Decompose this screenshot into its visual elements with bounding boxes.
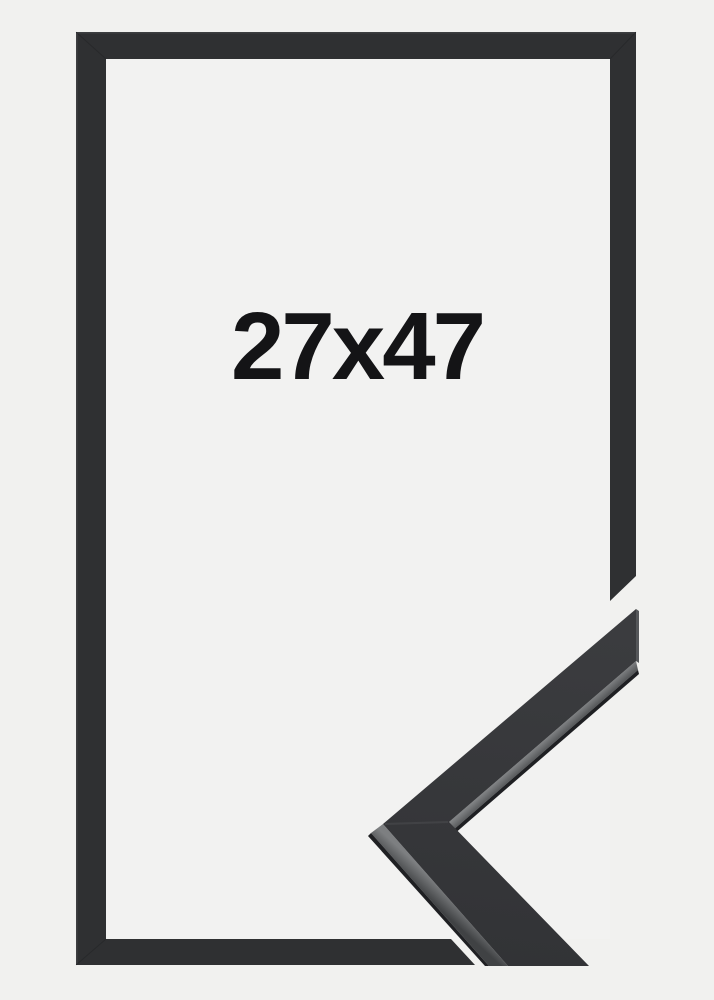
- size-label: 27x47: [0, 280, 714, 414]
- corner-sample-end-cut-edge: [636, 609, 639, 663]
- frame-product-illustration: [0, 0, 714, 1000]
- frame-opening-backing: [106, 59, 610, 939]
- product-photo: 27x47: [0, 0, 714, 1000]
